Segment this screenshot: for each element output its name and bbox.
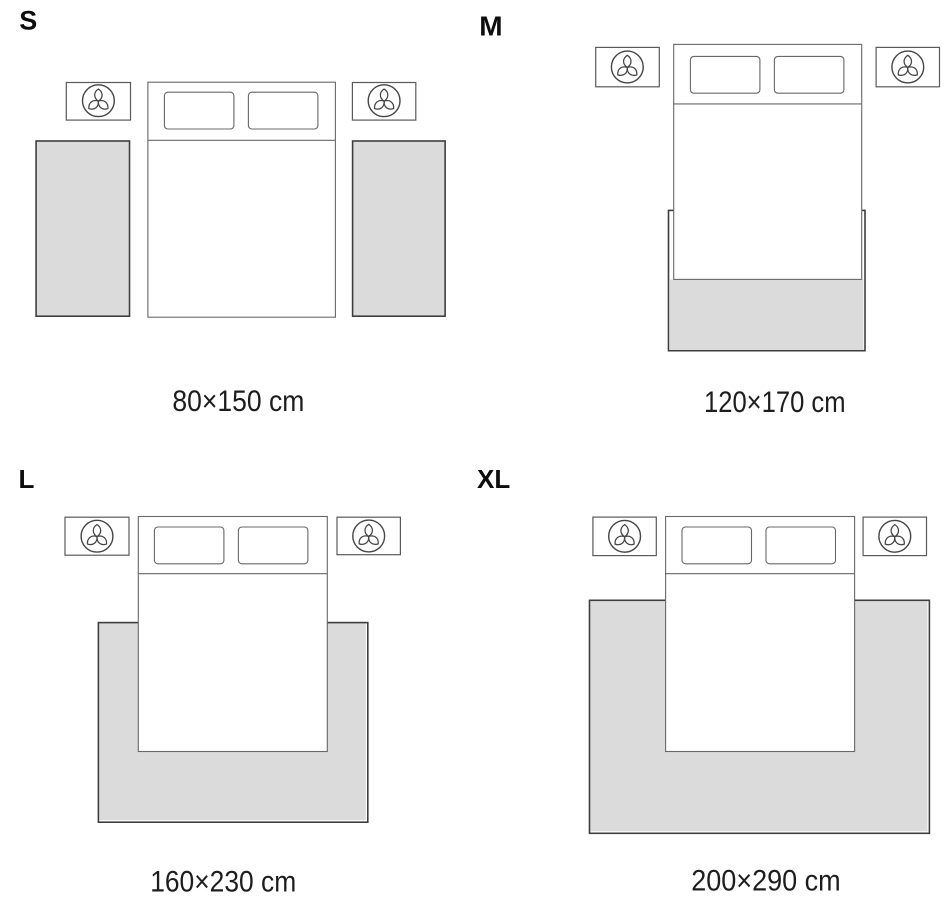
- svg-text:S: S: [19, 6, 37, 36]
- svg-text:120×170 cm: 120×170 cm: [704, 386, 846, 419]
- svg-text:160×230 cm: 160×230 cm: [150, 866, 296, 899]
- svg-text:L: L: [19, 464, 35, 494]
- svg-text:XL: XL: [477, 464, 510, 494]
- svg-text:80×150 cm: 80×150 cm: [172, 385, 304, 418]
- svg-text:M: M: [479, 10, 502, 41]
- svg-text:200×290 cm: 200×290 cm: [691, 865, 841, 898]
